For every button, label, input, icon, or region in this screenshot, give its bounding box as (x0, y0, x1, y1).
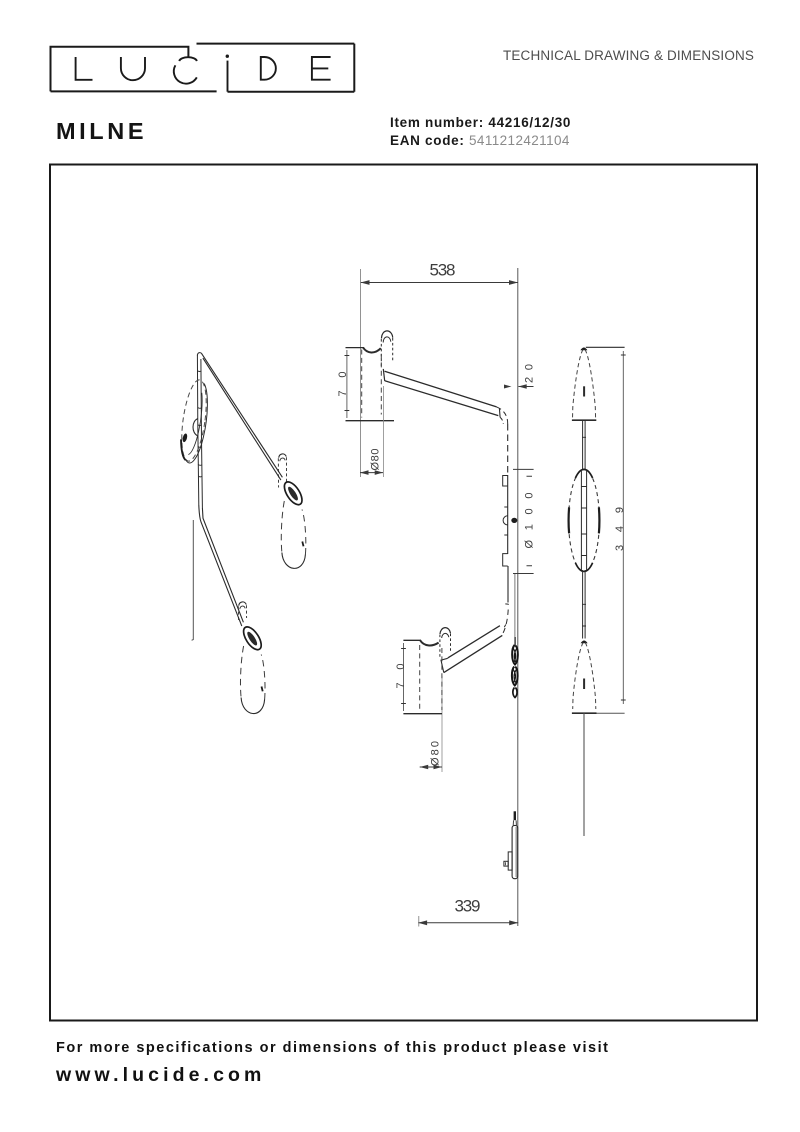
svg-text:Ø80: Ø80 (430, 741, 442, 766)
svg-text:70: 70 (337, 372, 349, 397)
svg-text:349: 349 (614, 507, 626, 551)
svg-text:339: 339 (455, 897, 481, 916)
svg-text:Ø80: Ø80 (369, 449, 381, 471)
svg-text:538: 538 (430, 261, 456, 280)
svg-text:70: 70 (395, 664, 407, 689)
svg-text:20: 20 (524, 364, 536, 383)
svg-text:Ø100: Ø100 (524, 493, 536, 549)
